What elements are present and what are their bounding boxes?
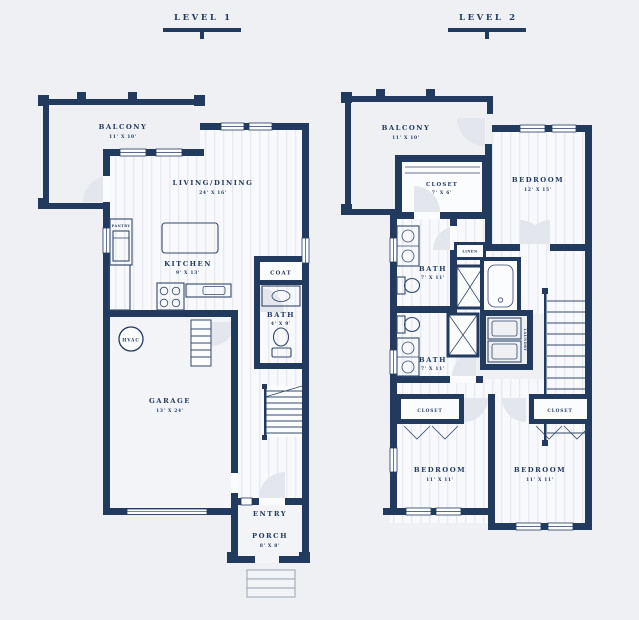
balcony2-dims: 11' X 10' [392, 136, 420, 141]
balcony-dims: 11' X 10' [109, 135, 137, 140]
closet-door-opening [414, 212, 440, 219]
closet-left-label: CLOSET [417, 409, 442, 414]
door-arc [457, 118, 485, 146]
bedroom1-dims: 12' X 15' [524, 188, 552, 193]
living-dims: 24' X 16' [199, 191, 227, 196]
garage-steps [191, 320, 211, 366]
level1-rule [163, 28, 241, 32]
hvac-unit: HVAC [119, 327, 143, 351]
closet-right-label: CLOSET [547, 409, 572, 414]
level1-header: LEVEL 1 [163, 13, 241, 32]
balcony2-label: BALCONY [382, 124, 431, 132]
level2-title: LEVEL 2 [448, 13, 526, 23]
level2-rule [448, 28, 526, 32]
entry-door-opening [259, 498, 285, 505]
balcony-door-opening [103, 176, 110, 202]
bath-label: BATH [267, 311, 295, 319]
floorplan-level2: LINEN LAUNDRY [330, 88, 630, 548]
level1-title: LEVEL 1 [163, 13, 241, 23]
bedroom1-label: BEDROOM [512, 176, 564, 184]
closet-top-dims: 7' X 6' [432, 191, 452, 196]
coat-label: COAT [270, 271, 292, 277]
closet-top-label: CLOSET [426, 182, 458, 188]
entry-label: ENTRY [253, 510, 287, 518]
level2-header: LEVEL 2 [448, 13, 526, 32]
porch-dims: 8' X 8' [260, 544, 280, 549]
level2-rule-tick [485, 32, 489, 39]
shower2 [448, 314, 478, 356]
bath-dims: 4' X 9' [271, 322, 291, 327]
kitchen-dims: 9' X 13' [176, 271, 200, 276]
bath2-dims: 7' X 11' [421, 367, 445, 372]
garage-dims: 13' X 24' [156, 409, 184, 414]
bath2-door-opening [450, 376, 476, 383]
bedroom2-label: BEDROOM [414, 466, 466, 474]
shower1 [456, 266, 484, 308]
bath2-label: BATH [419, 356, 447, 364]
porch-label: PORCH [252, 532, 288, 540]
garage-label: GARAGE [149, 397, 191, 405]
linen-label: LINEN [462, 250, 477, 254]
bathtub [482, 259, 519, 313]
level1-rule-tick [200, 32, 204, 39]
laundry-label: LAUNDRY [523, 329, 527, 352]
coat-closet: COAT [260, 262, 302, 280]
floorplan-page: { "colors": { "background": "#eef0f4", "… [0, 0, 639, 620]
living-label: LIVING/DINING [173, 179, 254, 187]
bedroom3-dims: 11' X 11' [526, 478, 554, 483]
laundry-closet: LAUNDRY [480, 310, 533, 370]
bath1-dims: 7' X 11' [421, 276, 445, 281]
bath1-label: BATH [419, 265, 447, 273]
porch-steps [247, 570, 295, 597]
bedroom3-label: BEDROOM [514, 466, 566, 474]
pantry-label: PANTRY [112, 224, 131, 228]
balcony-label: BALCONY [99, 123, 148, 131]
garage-door-opening [231, 473, 238, 493]
hvac-label: HVAC [122, 339, 139, 344]
stairs [262, 384, 302, 440]
kitchen-label: KITCHEN [164, 260, 212, 268]
floorplan-level1: HVAC COAT BALCONY 11' X 10' [25, 88, 325, 620]
bedroom2-dims: 11' X 11' [426, 478, 454, 483]
